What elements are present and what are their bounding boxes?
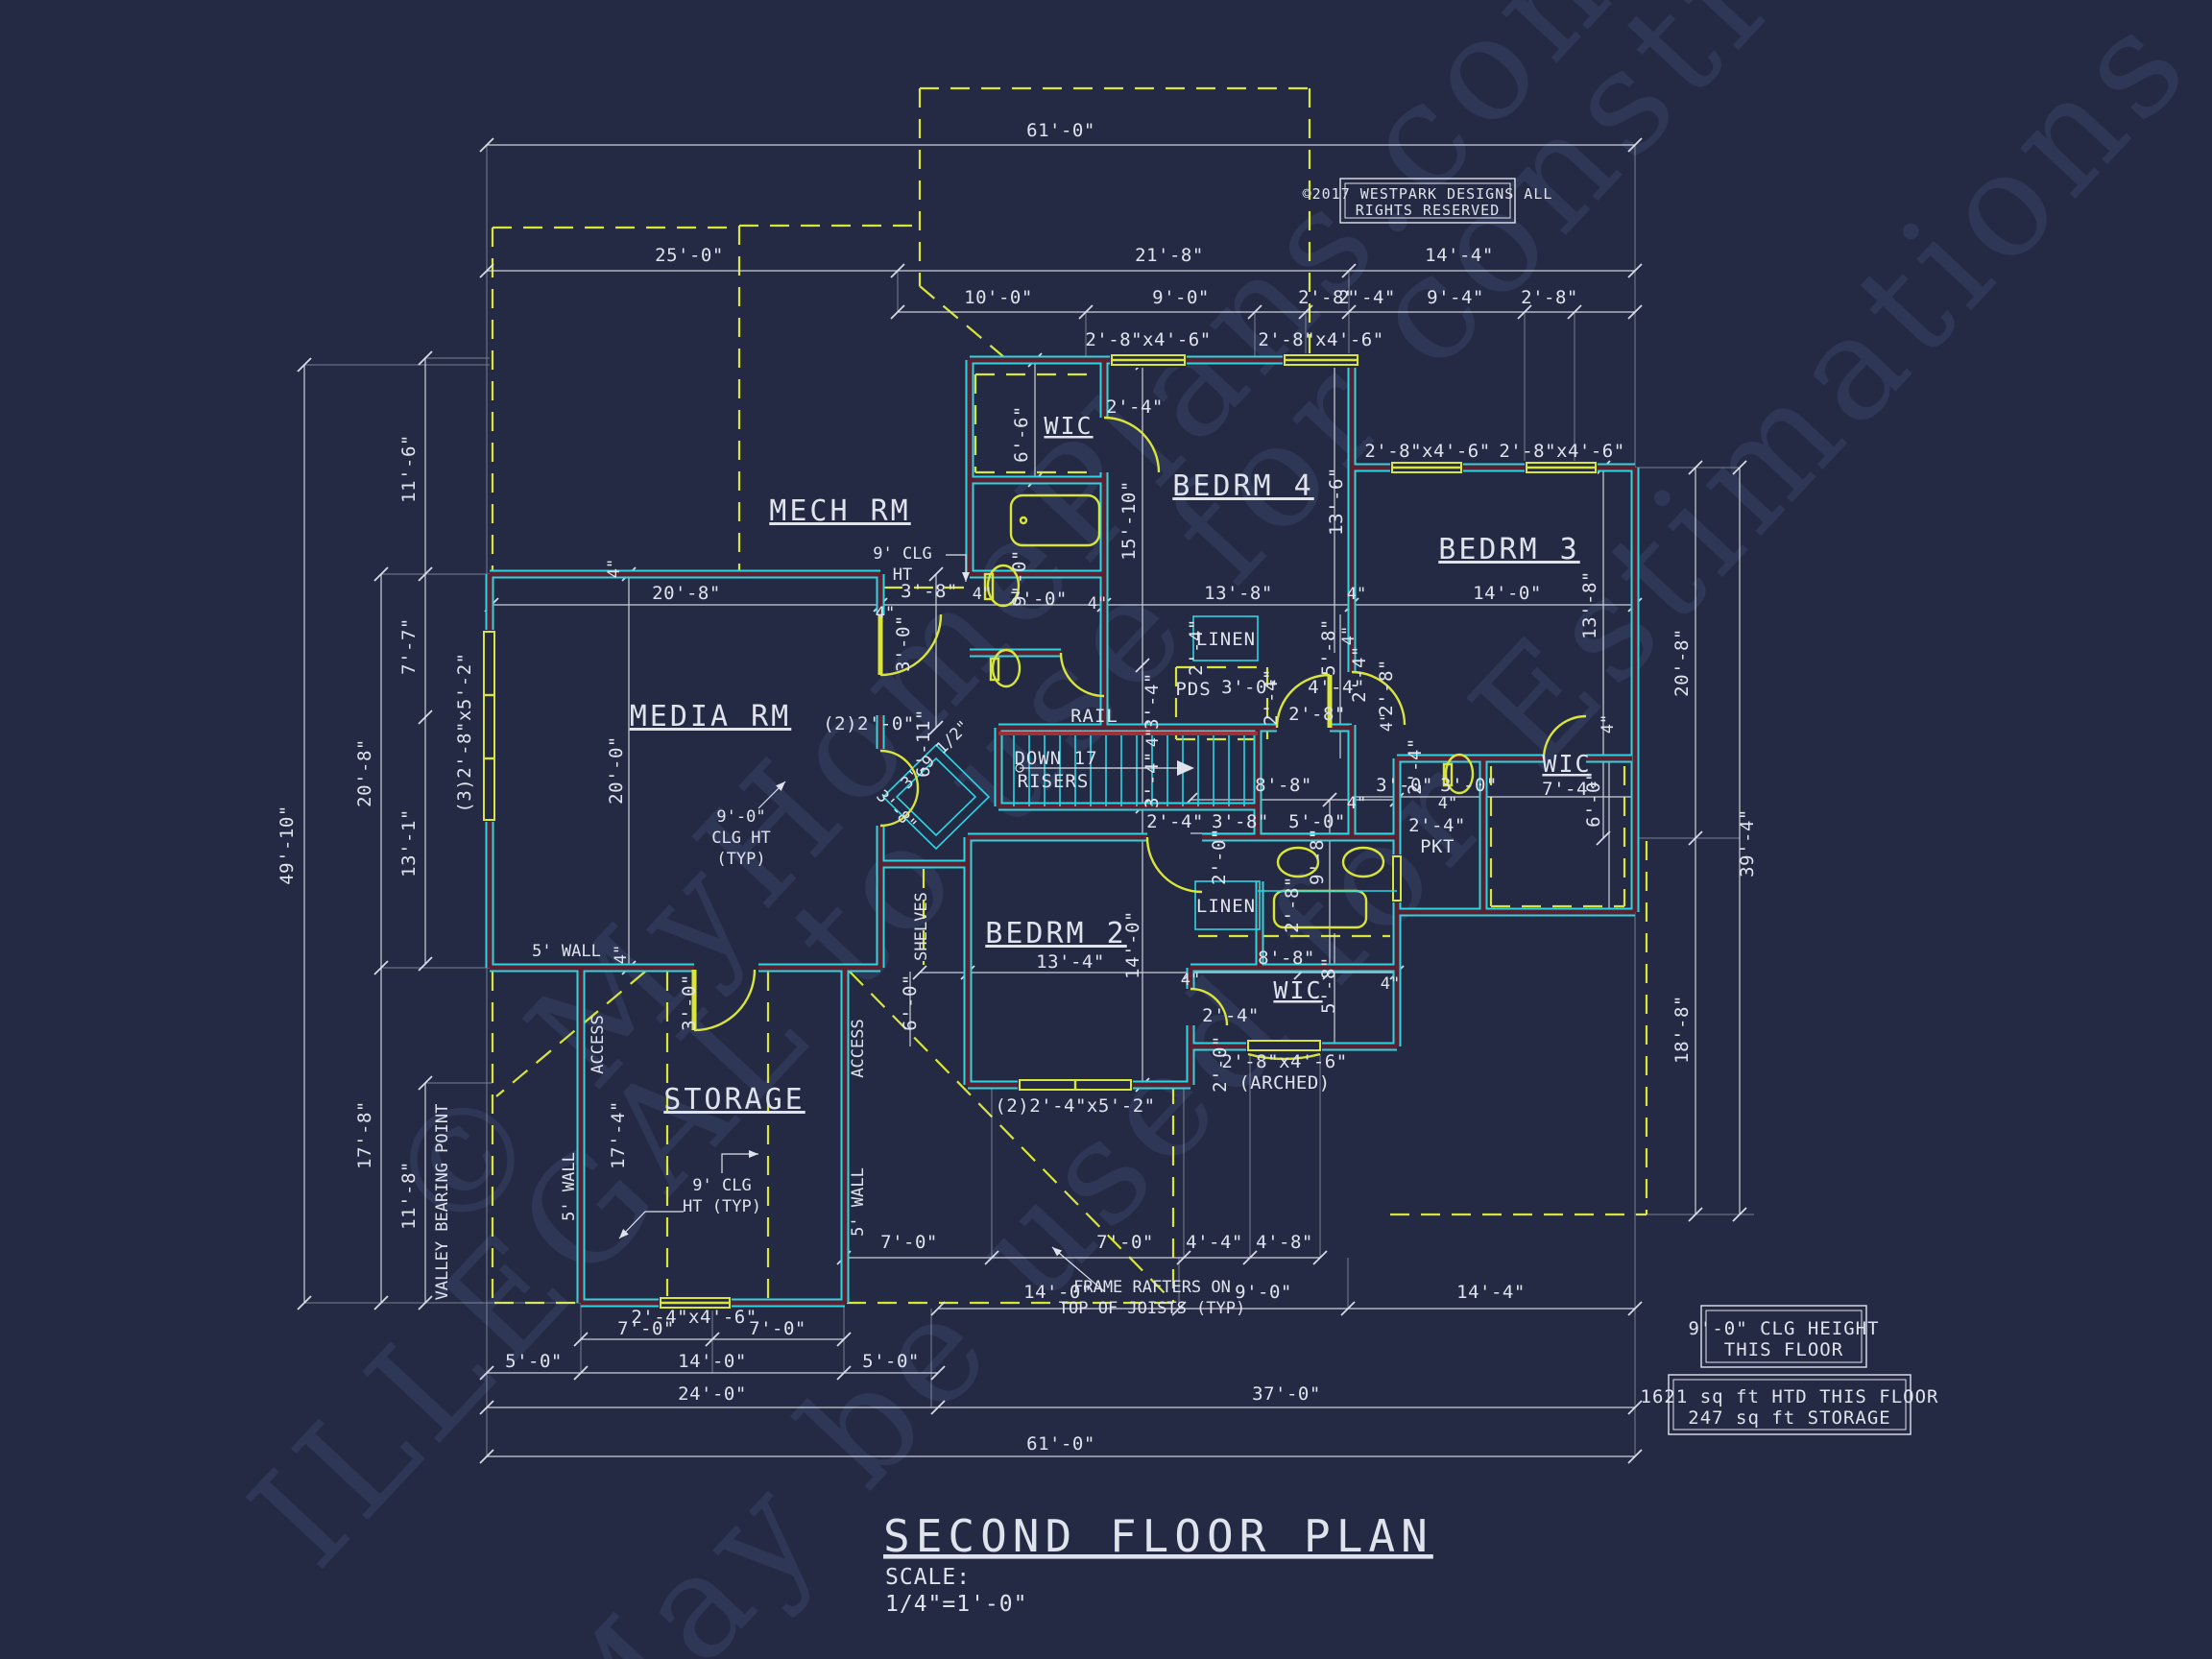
window-label: 2'-8"x4'-6" (1085, 329, 1211, 350)
note-label: TOP OF JOISTS (TYP) (1059, 1299, 1245, 1318)
window (1110, 353, 1187, 368)
door-label: 2'-4" (1408, 815, 1466, 836)
note-label: HT (TYP) (683, 1197, 761, 1216)
dim-label: 17'-4" (608, 1100, 629, 1169)
sqft-line1: 1621 sq ft HTD THIS FLOOR (1641, 1386, 1939, 1407)
dim-label: 3'-0" (893, 614, 914, 672)
window (1525, 461, 1598, 475)
dim-label: 4" (973, 585, 992, 604)
dim-label: 37'-0" (1252, 1383, 1321, 1405)
dim-label: 5'-0" (505, 1351, 563, 1372)
dim-label: 3'-8" (901, 581, 958, 602)
note-label: FRAME RAFTERS ON (1073, 1278, 1231, 1297)
dim-label: 9'-0" (1152, 287, 1210, 308)
room-label-media: MEDIA RM (630, 700, 792, 733)
dim-label: 15'-10" (1118, 480, 1140, 561)
dim-label: 7'-0" (880, 1232, 938, 1253)
dim-label: 4" (1088, 594, 1107, 613)
room-label-pds: PDS (1175, 679, 1211, 700)
dim-label: 6'-0" (1583, 770, 1604, 828)
note-label: 5' WALL (560, 1152, 579, 1221)
window-double-bedrm2 (1018, 1078, 1133, 1093)
room-label-bedrm4: BEDRM 4 (1172, 469, 1313, 503)
dim-label: 6'-6" (1011, 405, 1032, 463)
clg-height-box: 9'-0" CLG HEIGHT THIS FLOOR (1688, 1306, 1879, 1367)
dim-label: 8'-8" (1258, 948, 1315, 969)
window-triple-media (482, 630, 496, 822)
dim-label: 39'-4" (1737, 808, 1758, 878)
dim-label: 20'-8" (652, 583, 721, 604)
dim-label: 4" (1381, 974, 1400, 994)
note-label: 5' WALL (849, 1167, 868, 1237)
dim-label: 14'-4" (1425, 245, 1494, 266)
note-label: DOWN 17 (1014, 748, 1097, 769)
door-label: 2'-4" (1106, 397, 1164, 418)
dim-label: 2'-8" (1521, 287, 1578, 308)
dim-label: 7'-0" (749, 1318, 806, 1339)
room-label-mech: MECH RM (769, 494, 910, 528)
copyright-line1: ©2017 WESTPARK DESIGNS ALL (1303, 185, 1553, 203)
blueprint-page: © MyHomePlans.com ILLEGAL to use for con… (0, 0, 2212, 1659)
page-title: SECOND FLOOR PLAN (883, 1510, 1433, 1562)
dim-label: 20'-8" (1671, 628, 1693, 697)
window-label: (ARCHED) (1238, 1072, 1331, 1094)
dim-label: 13'-8" (1579, 570, 1600, 639)
note-label: PKT (1420, 836, 1455, 857)
note-label: 9' CLG (873, 544, 931, 564)
dim-label: 4" (1143, 728, 1163, 747)
dim-label: 61'-0" (1026, 1433, 1095, 1455)
note-label: (TYP) (716, 850, 765, 869)
dim-label: 14'-4" (1456, 1282, 1526, 1303)
window-label: (3)2'-8"x5'-2" (454, 652, 475, 812)
pocket-door (1393, 856, 1401, 901)
dim-label: 9'-8" (1307, 828, 1328, 885)
dim-label: 61'-0" (1026, 120, 1095, 141)
dim-label: 13'-6" (1326, 467, 1347, 536)
dim-label: 4" (1438, 794, 1457, 813)
room-label-bedrm3: BEDRM 3 (1438, 533, 1579, 566)
dim-label: 2'-4" (1186, 618, 1207, 676)
copyright-box: ©2017 WESTPARK DESIGNS ALL RIGHTS RESERV… (1303, 179, 1553, 223)
dim-label: 2'-4" (1338, 287, 1396, 308)
sqft-box: 1621 sq ft HTD THIS FLOOR 247 sq ft STOR… (1641, 1375, 1939, 1434)
window (1283, 353, 1359, 368)
dim-label: 7'-7" (398, 617, 420, 675)
dim-label: 5'-8" (1318, 956, 1339, 1014)
door-arc (1147, 837, 1202, 892)
scale-label: SCALE: (885, 1565, 971, 1590)
note-label: RISERS (1018, 771, 1090, 792)
clg-height-line2: THIS FLOOR (1724, 1339, 1843, 1360)
dim-label: 11'-8" (398, 1161, 420, 1230)
room-label-linen: LINEN (1196, 896, 1256, 917)
note-label: 9'-0" (716, 807, 765, 827)
dim-label: 4'-4" (1308, 677, 1365, 698)
dim-label: 9'-4" (1427, 287, 1484, 308)
dim-label: 20'-0" (606, 735, 627, 805)
note-label: VALLEY BEARING POINT (433, 1104, 452, 1301)
dim-label: 13'-8" (1204, 583, 1273, 604)
dim-label: 11'-6" (398, 434, 420, 503)
dim-label: 6'-0" (900, 974, 921, 1031)
dim-label: 5'-8" (1318, 618, 1339, 676)
door-label: 2'-8" (1376, 659, 1397, 716)
door-label: (2)2'-0" (823, 713, 915, 734)
dim-label: 2'-8" (1288, 704, 1346, 725)
note-label: RAIL (1070, 706, 1118, 727)
dim-label: 4" (1599, 714, 1618, 733)
dim-label: 10'-0" (964, 287, 1033, 308)
note-label: 9' CLG (692, 1176, 751, 1195)
dim-label: 2'-4" (1261, 668, 1282, 726)
room-label-storage: STORAGE (663, 1083, 805, 1117)
title-block: SECOND FLOOR PLAN SCALE: 1/4"=1'-0" (883, 1510, 1433, 1617)
dim-label: 21'-8" (1135, 245, 1204, 266)
dim-label: 14'-0" (1473, 583, 1542, 604)
dim-label: 4" (1181, 971, 1200, 990)
stair-arrow-icon (1177, 760, 1194, 776)
dim-label: 2'-0" (1209, 828, 1230, 885)
dim-label: 4" (1347, 794, 1366, 813)
note-label: SHELVES (912, 892, 931, 961)
note-label: CLG HT (711, 829, 770, 848)
dim-label: 2'-8" (1282, 876, 1303, 933)
window-label: 2'-8"x4'-6" (1499, 441, 1624, 462)
dim-label: 4" (1378, 712, 1397, 732)
sqft-line2: 247 sq ft STORAGE (1688, 1407, 1890, 1429)
dim-label: 20'-8" (354, 738, 375, 807)
dim-label: 13'-1" (398, 808, 420, 878)
window-label: 2'-8"x4'-6" (1258, 329, 1383, 350)
door-label: 2'-4" (1202, 1005, 1260, 1026)
dim-label: 25'-0" (655, 245, 724, 266)
window-label: 2'-8"x4'-6" (1221, 1051, 1347, 1072)
dim-label: 14'-0" (1122, 910, 1143, 979)
dim-label: 17'-8" (354, 1100, 375, 1169)
dim-label: 7'-0" (1096, 1232, 1154, 1253)
dim-label: 4" (612, 945, 631, 964)
dim-label: 3'-4" (1142, 751, 1163, 808)
dim-label: 24'-0" (678, 1383, 747, 1405)
room-label-bedrm2: BEDRM 2 (985, 917, 1126, 950)
dim-label: 4" (605, 559, 624, 578)
room-label-wic: WIC (1044, 412, 1093, 440)
window-label: 2'-8"x4'-6" (1364, 441, 1490, 462)
dim-label: 3'-0" (1440, 775, 1498, 796)
dim-label: 13'-4" (1036, 951, 1105, 973)
note-label: ACCESS (849, 1019, 868, 1077)
window (1390, 461, 1463, 475)
copyright-line2: RIGHTS RESERVED (1356, 202, 1500, 219)
dim-label: 4" (1339, 626, 1358, 645)
floor-plan-canvas: © MyHomePlans.com ILLEGAL to use for con… (0, 0, 2212, 1659)
dim-label: 4" (1347, 585, 1366, 604)
scale-value: 1/4"=1'-0" (885, 1592, 1027, 1617)
dim-label: 14'-0" (678, 1351, 747, 1372)
dim-label: 4'-4" (1186, 1232, 1243, 1253)
dim-label: 8'-8" (1255, 775, 1312, 796)
door-label: 2'-4" (1405, 737, 1426, 795)
dim-label: 3'-4" (1142, 672, 1163, 730)
dim-label: 2'-4" (1146, 811, 1204, 832)
note-label: ACCESS (589, 1015, 608, 1073)
dim-label: 7'-0" (1010, 589, 1068, 610)
room-label-wic: WIC (1273, 976, 1322, 1004)
clg-height-line1: 9'-0" CLG HEIGHT (1688, 1318, 1879, 1339)
dim-label: 18'-8" (1671, 995, 1693, 1064)
dim-label: 7'-0" (617, 1318, 675, 1339)
note-label: 5' WALL (532, 942, 601, 961)
door-label: 3'-0" (679, 974, 700, 1031)
dim-label: 5'-0" (862, 1351, 920, 1372)
window-label: (2)2'-4"x5'-2" (995, 1095, 1155, 1117)
dim-label: 49'-10" (276, 805, 298, 885)
dim-label: 4'-8" (1256, 1232, 1313, 1253)
